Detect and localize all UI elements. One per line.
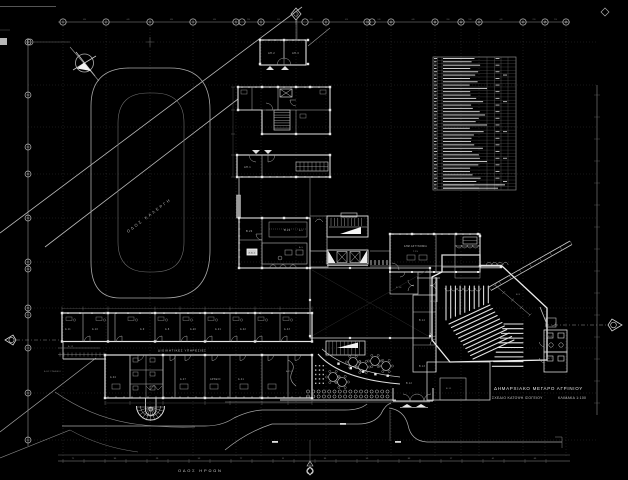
svg-text:Χ.Δ.1: Χ.Δ.1: [249, 252, 256, 255]
svg-text:ΔΗΜ.ΑΣΤΥΝΟΜΙΑ: ΔΗΜ.ΑΣΤΥΝΟΜΙΑ: [404, 245, 427, 248]
svg-text:Β.7: Β.7: [548, 358, 553, 360]
svg-text:Δ.41: Δ.41: [238, 378, 244, 381]
svg-text:Δ.21: Δ.21: [215, 328, 221, 331]
svg-text:Δ.47: Δ.47: [180, 378, 186, 381]
svg-text:Β.8: Β.8: [548, 336, 553, 338]
svg-text:Β.14: Β.14: [419, 319, 425, 322]
svg-text:Β.16: Β.16: [396, 287, 402, 289]
svg-text:Δ.43: Δ.43: [284, 328, 290, 331]
svg-text:Δ.9: Δ.9: [140, 328, 145, 331]
svg-text:Β.15: Β.15: [430, 301, 436, 303]
svg-text:ΑΡΧΕΙΟ: ΑΡΧΕΙΟ: [210, 378, 221, 381]
svg-text:Δ.10: Δ.10: [92, 328, 98, 331]
svg-text:G: G: [27, 268, 29, 271]
svg-text:Δ.Ε2 ΓΡΑΦΕΙΟ: Δ.Ε2 ΓΡΑΦΕΙΟ: [44, 370, 61, 373]
svg-text:Α.6: Α.6: [299, 229, 304, 232]
svg-text:Δ.42: Δ.42: [240, 328, 246, 331]
svg-text:Δ.04: Δ.04: [110, 376, 116, 379]
svg-text:Δ.11: Δ.11: [65, 328, 71, 331]
svg-text:Α.Π4: Α.Π4: [286, 370, 293, 373]
svg-text:Β.22: Β.22: [284, 228, 291, 232]
svg-text:Δ.12: Δ.12: [68, 345, 74, 348]
svg-text:ΔΙΟΙΚΗΤΙΚΕΣ ΥΠΗΡΕΣΙΕΣ: ΔΙΟΙΚΗΤΙΚΕΣ ΥΠΗΡΕΣΙΕΣ: [158, 349, 207, 353]
svg-text:ΟΔΟΣ ΗΡΩΩΝ: ΟΔΟΣ ΗΡΩΩΝ: [178, 468, 223, 473]
svg-text:Α.5: Α.5: [299, 246, 304, 249]
svg-text:ΑΠ.3: ΑΠ.3: [292, 51, 299, 55]
svg-text:Δ.20: Δ.20: [190, 328, 196, 331]
svg-text:Β.23: Β.23: [246, 229, 253, 233]
svg-text:ΣΧΕΔΙΟ ΚΑΤΟΨΗ ΙΣΟΓΕΙΟΥ: ΣΧΕΔΙΟ ΚΑΤΟΨΗ ΙΣΟΓΕΙΟΥ: [492, 396, 543, 400]
svg-text:ΑΠ.1: ΑΠ.1: [244, 165, 251, 169]
svg-text:ΑΠ.2: ΑΠ.2: [268, 51, 275, 55]
svg-text:Β.11: Β.11: [446, 388, 452, 390]
svg-text:H: H: [27, 307, 29, 310]
svg-text:ΔΗΜΑΡΧΙΑΚΟ ΜΕΓΑΡΟ ΑΓΡΙΝΙΟΥ: ΔΗΜΑΡΧΙΑΚΟ ΜΕΓΑΡΟ ΑΓΡΙΝΙΟΥ: [494, 386, 583, 391]
svg-text:Β.9: Β.9: [516, 294, 521, 296]
svg-text:D: D: [27, 173, 29, 176]
svg-text:Δ.8: Δ.8: [165, 328, 170, 331]
svg-text:Β.13: Β.13: [419, 365, 425, 368]
svg-text:Β.12: Β.12: [406, 382, 412, 385]
svg-text:ΚΛΙΜΑΚΑ 1:100: ΚΛΙΜΑΚΑ 1:100: [558, 396, 586, 400]
svg-text:C: C: [27, 146, 29, 149]
svg-text:Γ.15: Γ.15: [413, 251, 419, 253]
